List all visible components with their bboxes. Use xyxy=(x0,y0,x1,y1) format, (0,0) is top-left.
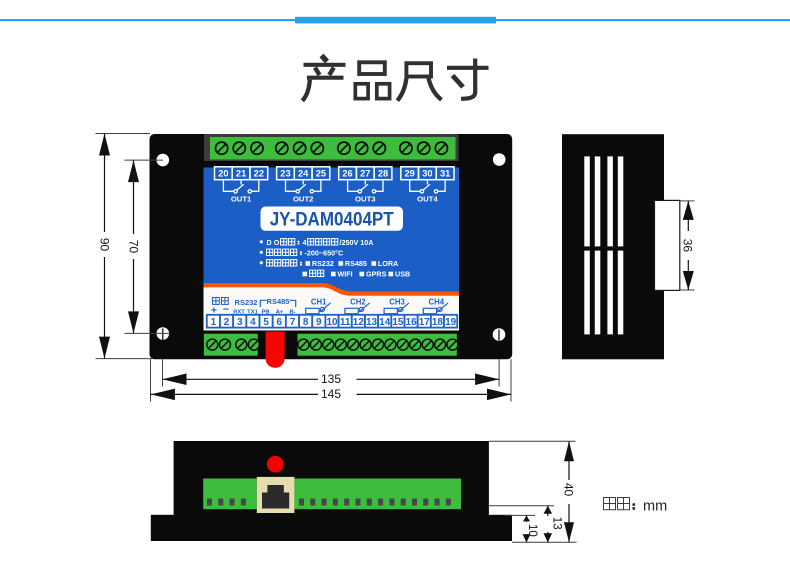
svg-text:2: 2 xyxy=(224,317,230,328)
svg-text:OUT1: OUT1 xyxy=(231,194,252,203)
svg-text:90: 90 xyxy=(98,238,112,252)
svg-text:24: 24 xyxy=(298,169,309,179)
svg-text:28: 28 xyxy=(378,169,388,179)
svg-text:RS232: RS232 xyxy=(312,259,334,268)
svg-text:26: 26 xyxy=(342,169,352,179)
svg-text:11: 11 xyxy=(340,317,351,328)
svg-text:RS485: RS485 xyxy=(345,259,367,268)
svg-text:LORA: LORA xyxy=(378,259,398,268)
svg-text:23: 23 xyxy=(280,169,290,179)
svg-text:GPRS: GPRS xyxy=(366,270,387,279)
svg-text:13: 13 xyxy=(551,517,563,530)
svg-text:6: 6 xyxy=(277,317,283,328)
svg-text:5: 5 xyxy=(263,317,269,328)
svg-text:CH2: CH2 xyxy=(350,298,366,307)
svg-text:-200~650°C: -200~650°C xyxy=(305,249,344,258)
svg-text:8: 8 xyxy=(303,317,309,328)
svg-text:19: 19 xyxy=(445,317,457,328)
svg-text:12: 12 xyxy=(353,317,365,328)
svg-text:17: 17 xyxy=(419,317,431,328)
svg-text:31: 31 xyxy=(440,169,450,179)
svg-text:9: 9 xyxy=(316,317,322,328)
svg-text:1: 1 xyxy=(211,317,217,328)
svg-text:OUT3: OUT3 xyxy=(355,194,376,203)
svg-text:10: 10 xyxy=(326,317,338,328)
svg-text:RS232: RS232 xyxy=(235,298,258,307)
svg-text:15: 15 xyxy=(392,317,404,328)
svg-text:−: − xyxy=(223,304,229,316)
svg-text:30: 30 xyxy=(422,169,432,179)
svg-text:18: 18 xyxy=(432,317,444,328)
svg-text:20: 20 xyxy=(218,169,228,179)
svg-text:WIFI: WIFI xyxy=(338,270,353,279)
svg-text:OUT4: OUT4 xyxy=(417,194,438,203)
svg-text:JY-DAM0404PT: JY-DAM0404PT xyxy=(270,209,394,231)
svg-text:27: 27 xyxy=(360,169,370,179)
svg-text:14: 14 xyxy=(379,317,391,328)
svg-text:CH4: CH4 xyxy=(428,298,444,307)
svg-text:OUT2: OUT2 xyxy=(293,194,314,203)
svg-text:21: 21 xyxy=(236,169,246,179)
svg-text:4: 4 xyxy=(303,238,307,247)
svg-text:3: 3 xyxy=(237,317,243,328)
svg-text:40: 40 xyxy=(562,483,576,497)
svg-text:36: 36 xyxy=(681,239,695,253)
svg-text:mm: mm xyxy=(643,499,667,515)
svg-text:USB: USB xyxy=(395,270,410,279)
svg-text:D O: D O xyxy=(267,238,280,247)
svg-text:/250V 10A: /250V 10A xyxy=(340,238,374,247)
svg-text:RS485: RS485 xyxy=(267,297,290,306)
svg-text:70: 70 xyxy=(127,240,141,254)
svg-text:13: 13 xyxy=(366,317,378,328)
svg-text:4: 4 xyxy=(250,317,256,328)
svg-text:16: 16 xyxy=(406,317,418,328)
svg-text:10: 10 xyxy=(526,524,538,537)
svg-text:CH3: CH3 xyxy=(389,298,405,307)
svg-text:29: 29 xyxy=(404,169,414,179)
svg-text:22: 22 xyxy=(254,169,264,179)
svg-text:CH1: CH1 xyxy=(311,298,327,307)
svg-text:135: 135 xyxy=(321,372,341,386)
svg-text:7: 7 xyxy=(290,317,296,328)
svg-text:145: 145 xyxy=(321,387,341,401)
svg-text:25: 25 xyxy=(316,169,326,179)
